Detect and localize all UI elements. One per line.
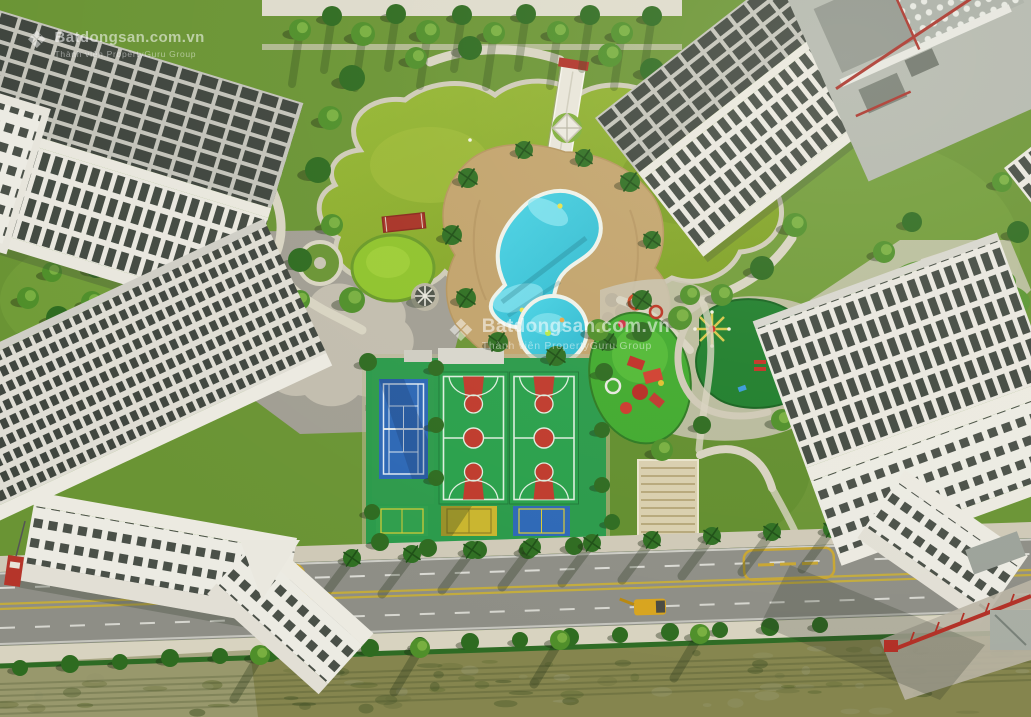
aerial-photo: ❖ Batdongsan.com.vn Thành viên PropertyG…	[0, 0, 1031, 717]
scene-svg	[0, 0, 1031, 717]
light-overlay	[0, 0, 1031, 717]
